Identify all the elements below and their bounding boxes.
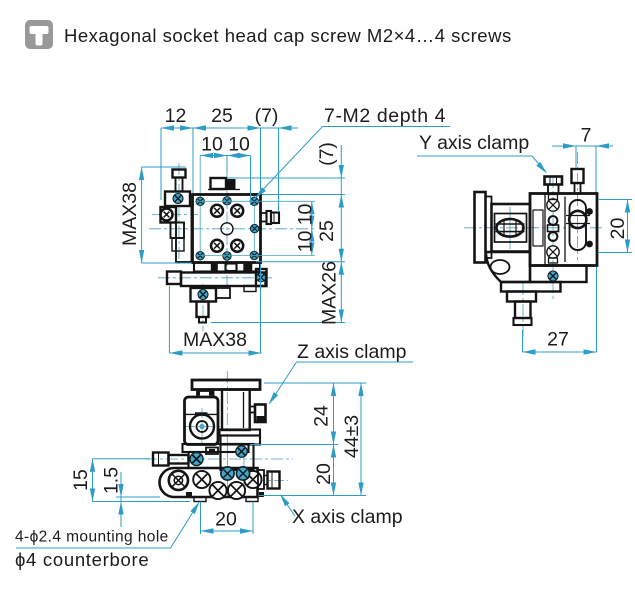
svg-text:MAX38: MAX38 (119, 182, 141, 246)
svg-text:25: 25 (316, 220, 338, 242)
svg-text:Hexagonal socket head cap scre: Hexagonal socket head cap screw M2×4…4 s… (64, 25, 512, 46)
svg-text:10 10: 10 10 (201, 134, 250, 156)
svg-text:24: 24 (311, 405, 333, 427)
svg-text:20: 20 (607, 218, 629, 240)
svg-text:4-ϕ2.4 mounting hole: 4-ϕ2.4 mounting hole (15, 529, 169, 546)
svg-text:10 10: 10 10 (295, 203, 317, 252)
svg-text:Z axis clamp: Z axis clamp (297, 341, 407, 363)
svg-text:(7): (7) (255, 105, 279, 127)
svg-text:25: 25 (211, 105, 233, 127)
svg-text:20: 20 (313, 463, 335, 485)
svg-text:MAX38: MAX38 (183, 329, 247, 351)
svg-text:X axis clamp: X axis clamp (292, 506, 403, 528)
svg-text:7-M2 depth 4: 7-M2 depth 4 (324, 105, 446, 127)
svg-text:20: 20 (215, 509, 237, 531)
svg-text:(7): (7) (316, 142, 338, 166)
svg-text:1.5: 1.5 (101, 467, 123, 494)
svg-text:MAX26: MAX26 (319, 261, 341, 325)
svg-text:15: 15 (70, 469, 92, 491)
svg-text:Y axis clamp: Y axis clamp (419, 132, 529, 154)
svg-text:7: 7 (581, 125, 592, 147)
svg-text:44±3: 44±3 (341, 415, 363, 458)
svg-text:12: 12 (165, 105, 187, 127)
svg-text:27: 27 (547, 329, 569, 351)
svg-text:ϕ4 counterbore: ϕ4 counterbore (15, 549, 149, 570)
